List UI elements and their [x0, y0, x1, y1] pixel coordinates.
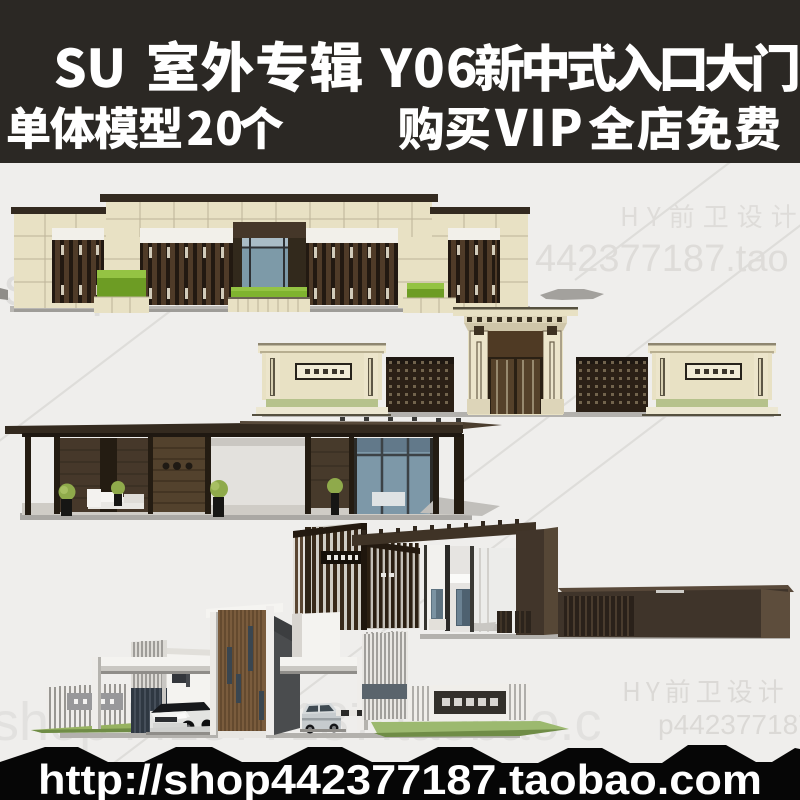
svg-text:p442377187.tao: p442377187.tao	[658, 709, 800, 740]
svg-text:442377187.tao: 442377187.tao	[535, 238, 789, 280]
svg-text:http://shop442377187.taobao.co: http://shop442377187.taobao.com	[38, 756, 762, 800]
